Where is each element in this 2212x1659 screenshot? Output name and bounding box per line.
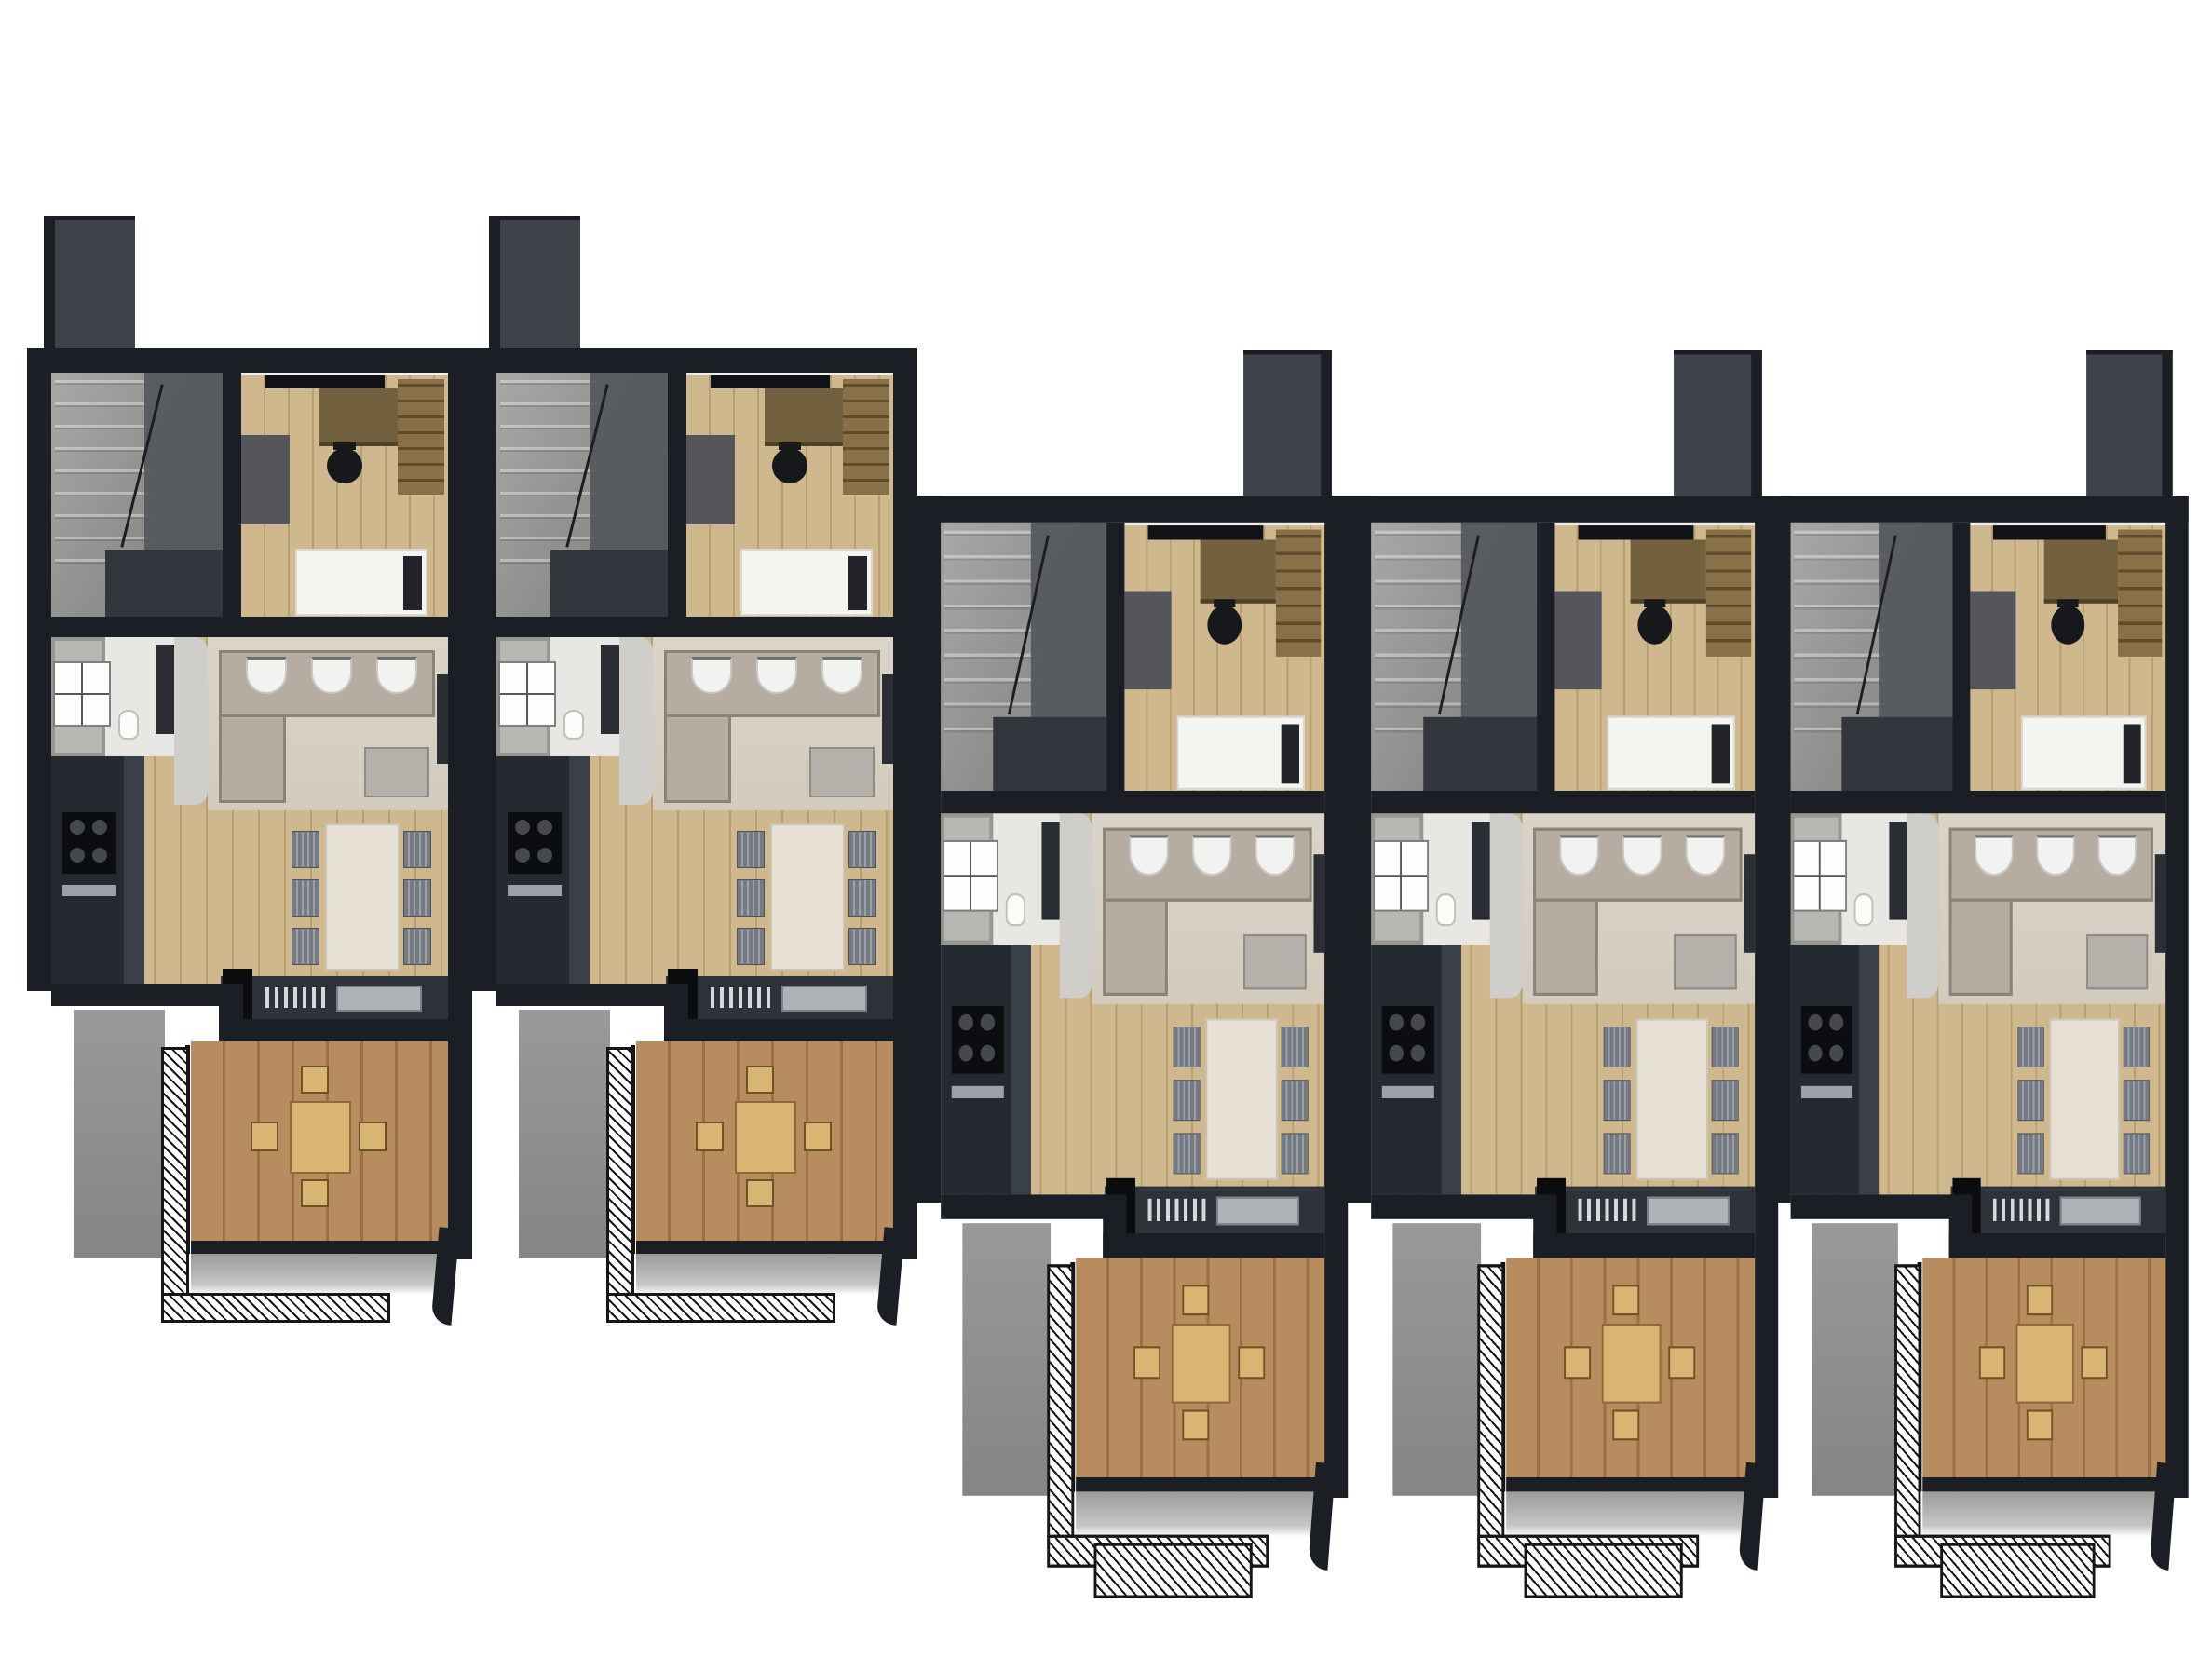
stair-landing <box>105 550 223 617</box>
exterior-wall-left <box>472 348 496 991</box>
sofa-back-cushion <box>2097 835 2137 876</box>
exterior-stairs-side <box>161 1047 189 1306</box>
dining-chair <box>848 879 876 917</box>
dining-chair <box>1604 1133 1631 1174</box>
exterior-side-wall <box>519 1010 610 1258</box>
burner <box>70 848 85 863</box>
sofa-back-cushion <box>691 657 732 694</box>
exterior-stairs-porch <box>1094 1543 1253 1598</box>
oven <box>952 1086 1004 1098</box>
bed <box>2021 716 2146 790</box>
interior-wall <box>668 373 686 617</box>
desk <box>1201 540 1276 604</box>
wardrobe <box>843 379 889 495</box>
dining-chair <box>292 928 319 965</box>
dining-table <box>2049 1018 2120 1180</box>
dark-floor-mat <box>241 435 290 524</box>
dining-chair <box>1604 1080 1631 1121</box>
burner <box>1808 1014 1822 1031</box>
exterior-wall-top <box>1768 496 2189 523</box>
tv-panel <box>265 375 385 388</box>
sofa-back-cushion <box>1129 835 1169 876</box>
outdoor-table <box>735 1101 796 1174</box>
window-cross-icon <box>498 661 556 727</box>
kitchen-counter-edge <box>1442 945 1461 1194</box>
outdoor-table <box>1602 1324 1662 1404</box>
sofa-back-cushion <box>1255 835 1296 876</box>
rear-wall-left <box>1791 1194 1955 1218</box>
oven <box>508 885 562 896</box>
burner <box>92 820 107 835</box>
interior-wall <box>1537 523 1554 791</box>
sofa-back-cushion <box>376 657 417 694</box>
bed <box>740 549 873 616</box>
outdoor-chair <box>2027 1409 2053 1440</box>
outdoor-chair <box>1979 1346 2005 1379</box>
bathroom-vanity <box>1472 822 1489 920</box>
exterior-wall-top <box>27 348 472 373</box>
dining-chair <box>1282 1080 1309 1121</box>
kitchen <box>1371 945 1461 1194</box>
outdoor-chair <box>1612 1409 1639 1440</box>
rear-wall-left <box>496 984 670 1006</box>
ottoman <box>1674 934 1737 989</box>
kitchen <box>941 945 1031 1194</box>
chimney-block <box>1243 350 1332 496</box>
chimney-block <box>44 216 135 348</box>
curved-partition-wall <box>174 637 208 805</box>
interior-wall <box>1952 523 1970 791</box>
bathroom-vanity <box>156 645 174 734</box>
rear-wall-left <box>1371 1194 1539 1218</box>
townhouse-unit-2 <box>472 216 917 1343</box>
rear-wall-right <box>219 1019 448 1041</box>
exterior-wall-left <box>1768 496 1791 1203</box>
burner <box>981 1045 995 1062</box>
oven <box>1801 1086 1852 1098</box>
outdoor-chair <box>301 1066 329 1094</box>
curved-partition-wall <box>1060 813 1092 998</box>
sofa-back-cushion <box>1622 835 1662 876</box>
sofa-back-cushion <box>311 657 352 694</box>
chimney-block <box>489 216 580 348</box>
dish-rack <box>1148 1199 1206 1221</box>
toilet <box>1436 893 1456 926</box>
kitchen-counter-edge <box>1859 945 1879 1194</box>
burner <box>958 1045 972 1062</box>
dining-table <box>1205 1018 1277 1180</box>
exterior-concrete <box>191 1254 448 1295</box>
outdoor-chair <box>1612 1285 1639 1315</box>
townhouse-unit-3 <box>917 350 1348 1590</box>
burner <box>1829 1014 1843 1031</box>
window-cross-icon <box>53 661 111 727</box>
dining-chair <box>2017 1133 2043 1174</box>
dining-chair <box>1174 1133 1201 1174</box>
exterior-concrete <box>1076 1491 1324 1536</box>
burner <box>1829 1045 1843 1062</box>
kitchen-sink <box>1216 1197 1299 1226</box>
floor-plan-render <box>0 0 2212 1659</box>
outdoor-table <box>290 1101 351 1174</box>
burner <box>981 1014 995 1031</box>
stair-landing <box>550 550 668 617</box>
ottoman <box>364 747 429 797</box>
bed <box>1607 716 1734 790</box>
exterior-wall-left <box>1348 496 1371 1203</box>
office-chair <box>327 448 362 483</box>
living-room <box>1523 813 1755 1004</box>
rear-wall-left <box>51 984 224 1006</box>
exterior-concrete <box>1506 1491 1755 1536</box>
dish-rack <box>1579 1199 1636 1221</box>
dining-chair <box>1174 1027 1201 1067</box>
sofa-back-cushion <box>756 657 797 694</box>
deck-edge-wall <box>1506 1477 1755 1491</box>
kitchen-sink <box>336 986 422 1012</box>
stair-landing <box>993 717 1106 791</box>
cooktop <box>1382 1006 1434 1074</box>
sofa-back-cushion <box>1686 835 1726 876</box>
kitchen-sink <box>781 986 867 1012</box>
office-chair <box>772 448 807 483</box>
rear-wall-right <box>664 1019 893 1041</box>
exterior-concrete <box>636 1254 893 1295</box>
bedroom-office <box>1124 523 1324 791</box>
kitchen-counter-edge <box>1011 945 1031 1194</box>
interior-wall <box>1791 791 2166 813</box>
dark-floor-mat <box>1124 592 1171 690</box>
exterior-side-wall <box>1812 1223 1898 1496</box>
dining-chair <box>1174 1080 1201 1121</box>
ottoman <box>2086 934 2148 989</box>
bed-pillow <box>1712 725 1730 784</box>
bed-pillow <box>848 556 867 610</box>
interior-wall <box>223 373 241 617</box>
dining-table <box>1635 1018 1707 1180</box>
wardrobe <box>2118 530 2162 657</box>
living-room <box>208 637 448 810</box>
wardrobe <box>1276 530 1321 657</box>
bed-pillow <box>2124 725 2141 784</box>
outdoor-chair <box>1182 1285 1209 1315</box>
terrace-deck <box>1076 1258 1324 1492</box>
exterior-stairs-side <box>1894 1264 1920 1549</box>
living-room <box>1938 813 2165 1004</box>
outdoor-table <box>2015 1324 2073 1404</box>
kitchen-counter-edge <box>569 756 590 984</box>
outdoor-table <box>1172 1324 1231 1404</box>
exterior-stairs-porch <box>1940 1543 2095 1598</box>
dining-chair <box>403 928 431 965</box>
terrace-deck <box>1922 1258 2165 1492</box>
stairwell <box>941 523 1106 791</box>
kitchen-counter-edge <box>124 756 144 984</box>
outdoor-chair <box>1668 1346 1695 1379</box>
bed <box>295 549 427 616</box>
living-room <box>653 637 893 810</box>
sofa-section-horizontal <box>219 650 435 717</box>
dining-chair <box>2017 1027 2043 1067</box>
outdoor-chair <box>804 1122 832 1151</box>
toilet <box>1006 893 1025 926</box>
townhouse-unit-5 <box>1768 350 2189 1590</box>
dining-table <box>325 823 400 971</box>
stairwell <box>496 373 668 617</box>
dark-floor-mat <box>1554 592 1601 690</box>
sofa-back-cushion <box>1559 835 1599 876</box>
exterior-wall-left <box>917 496 941 1203</box>
dining-chair <box>1282 1027 1309 1067</box>
kitchen <box>1791 945 1880 1194</box>
oven <box>1382 1086 1434 1098</box>
tv-panel <box>1993 525 2106 539</box>
office-chair <box>2051 605 2084 645</box>
window-cross-icon <box>1373 840 1429 912</box>
exterior-side-wall <box>1392 1223 1481 1496</box>
dining-chair <box>2124 1027 2150 1067</box>
curved-partition-wall <box>1490 813 1523 998</box>
rear-wall-right <box>1103 1233 1324 1258</box>
dining-chair <box>1712 1027 1739 1067</box>
outdoor-chair <box>251 1122 278 1151</box>
window-cross-icon <box>1792 840 1847 912</box>
outdoor-chair <box>359 1122 387 1151</box>
toilet <box>563 710 584 740</box>
outdoor-chair <box>746 1066 774 1094</box>
oven <box>62 885 116 896</box>
sofa-back-cushion <box>1192 835 1232 876</box>
dining-chair <box>1604 1027 1631 1067</box>
sofa-back-cushion <box>821 657 862 694</box>
desk <box>2044 540 2118 604</box>
kitchen-island-counter <box>666 976 893 1021</box>
kitchen <box>51 756 144 984</box>
cooktop <box>1801 1006 1852 1074</box>
stair-landing <box>1841 717 1952 791</box>
toilet <box>118 710 139 740</box>
burner <box>537 848 552 863</box>
tv-panel <box>711 375 830 388</box>
wall-media-panel <box>2155 854 2165 953</box>
rear-wall-right <box>1533 1233 1755 1258</box>
dining-chair <box>2124 1080 2150 1121</box>
burner <box>1389 1045 1403 1062</box>
bedroom-office <box>1970 523 2165 791</box>
townhouse-unit-1 <box>27 216 472 1343</box>
sofa-section-horizontal <box>1103 828 1311 902</box>
dark-floor-mat <box>1970 592 2015 690</box>
dining-chair <box>292 879 319 917</box>
outdoor-chair <box>1182 1409 1209 1440</box>
burner <box>1808 1045 1822 1062</box>
exterior-concrete <box>1922 1491 2165 1536</box>
dining-chair <box>848 831 876 868</box>
outdoor-chair <box>1564 1346 1591 1379</box>
dining-chair <box>403 831 431 868</box>
sofa-section-horizontal <box>1533 828 1742 902</box>
exterior-wall-top <box>917 496 1348 523</box>
wardrobe <box>398 379 444 495</box>
kitchen <box>496 756 590 984</box>
stairwell <box>1371 523 1537 791</box>
exterior-wall-left <box>27 348 51 991</box>
burner <box>1389 1014 1403 1031</box>
exterior-stairs-side <box>606 1047 634 1306</box>
chimney-block <box>1674 350 1762 496</box>
dining-table <box>770 823 845 971</box>
burner <box>958 1014 972 1031</box>
curved-partition-wall <box>619 637 653 805</box>
desk <box>765 388 843 446</box>
desk <box>319 388 398 446</box>
dining-chair <box>848 928 876 965</box>
dark-floor-mat <box>686 435 735 524</box>
outdoor-chair <box>1238 1346 1265 1379</box>
chimney-block <box>2086 350 2173 496</box>
wardrobe <box>1706 530 1751 657</box>
office-chair <box>1207 605 1242 645</box>
outdoor-chair <box>746 1179 774 1207</box>
dish-rack <box>1993 1199 2049 1221</box>
dining-chair <box>1712 1080 1739 1121</box>
outdoor-chair <box>696 1122 724 1151</box>
bedroom-office <box>686 373 893 617</box>
terrace-deck <box>636 1041 893 1254</box>
sofa-back-cushion <box>246 657 287 694</box>
rear-wall-right <box>1949 1233 2165 1258</box>
rear-wall-left <box>941 1194 1108 1218</box>
dining-chair <box>737 928 765 965</box>
cooktop <box>62 812 116 874</box>
burner <box>515 848 530 863</box>
bed-pillow <box>1282 725 1299 784</box>
outdoor-chair <box>2027 1285 2053 1315</box>
sofa-back-cushion <box>2036 835 2075 876</box>
exterior-side-wall <box>74 1010 165 1258</box>
bathroom-vanity <box>1041 822 1059 920</box>
exterior-stairs-side <box>1477 1264 1504 1549</box>
wall-media-panel <box>1744 854 1755 953</box>
dining-chair <box>1282 1133 1309 1174</box>
outdoor-chair <box>1133 1346 1160 1379</box>
bedroom-office <box>1554 523 1755 791</box>
exterior-stairs-porch <box>1525 1543 1683 1598</box>
stairwell <box>51 373 223 617</box>
kitchen-sink <box>2060 1197 2141 1226</box>
bedroom-office <box>241 373 448 617</box>
dining-chair <box>1712 1133 1739 1174</box>
interior-wall <box>1371 791 1755 813</box>
stairwell <box>1791 523 1953 791</box>
dining-chair <box>2017 1080 2043 1121</box>
interior-wall <box>496 617 893 637</box>
kitchen-island-counter <box>221 976 448 1021</box>
cooktop <box>952 1006 1004 1074</box>
deck-edge-wall <box>1922 1477 2165 1491</box>
interior-wall <box>941 791 1324 813</box>
dish-rack <box>711 987 770 1008</box>
toilet <box>1854 893 1874 926</box>
townhouse-unit-4 <box>1348 350 1778 1590</box>
sofa-back-cushion <box>1975 835 2014 876</box>
burner <box>92 848 107 863</box>
exterior-wall-top <box>1348 496 1778 523</box>
kitchen-island-counter <box>1105 1187 1324 1236</box>
dining-chair <box>403 879 431 917</box>
bathroom-vanity <box>601 645 619 734</box>
kitchen-sink <box>1647 1197 1730 1226</box>
burner <box>70 820 85 835</box>
sofa-section-horizontal <box>1949 828 2153 902</box>
sofa-section-horizontal <box>664 650 880 717</box>
wall-media-panel <box>882 674 893 764</box>
deck-edge-wall <box>191 1241 448 1254</box>
dining-chair <box>737 879 765 917</box>
bed <box>1176 716 1304 790</box>
tv-panel <box>1579 525 1694 539</box>
deck-edge-wall <box>1076 1477 1324 1491</box>
party-wall-right <box>893 348 917 1259</box>
living-room <box>1092 813 1324 1004</box>
ottoman <box>1243 934 1307 989</box>
deck-edge-wall <box>636 1241 893 1254</box>
burner <box>1411 1045 1425 1062</box>
exterior-side-wall <box>962 1223 1051 1496</box>
exterior-stairs-bottom <box>606 1293 835 1323</box>
stair-landing <box>1423 717 1537 791</box>
party-wall-right <box>2165 496 2189 1498</box>
window-cross-icon <box>943 840 998 912</box>
outdoor-chair <box>2081 1346 2107 1379</box>
dining-chair <box>737 831 765 868</box>
dining-chair <box>292 831 319 868</box>
office-chair <box>1637 605 1672 645</box>
party-wall-right <box>1324 496 1348 1498</box>
ottoman <box>809 747 875 797</box>
burner <box>1411 1014 1425 1031</box>
curved-partition-wall <box>1907 813 1938 998</box>
party-wall-right <box>448 348 472 1259</box>
interior-wall <box>51 617 448 637</box>
bathroom-vanity <box>1889 822 1907 920</box>
dining-chair <box>2124 1133 2150 1174</box>
burner <box>515 820 530 835</box>
kitchen-island-counter <box>1535 1187 1755 1236</box>
desk <box>1631 540 1706 604</box>
terrace-deck <box>191 1041 448 1254</box>
bed-pillow <box>403 556 422 610</box>
wall-media-panel <box>1313 854 1324 953</box>
outdoor-chair <box>301 1179 329 1207</box>
tv-panel <box>1148 525 1264 539</box>
terrace-deck <box>1506 1258 1755 1492</box>
exterior-stairs-side <box>1047 1264 1074 1549</box>
kitchen-island-counter <box>1951 1187 2166 1236</box>
dish-rack <box>265 987 325 1008</box>
exterior-stairs-bottom <box>161 1293 390 1323</box>
interior-wall <box>1106 523 1124 791</box>
wall-media-panel <box>437 674 448 764</box>
exterior-wall-top <box>472 348 917 373</box>
cooktop <box>508 812 562 874</box>
burner <box>537 820 552 835</box>
